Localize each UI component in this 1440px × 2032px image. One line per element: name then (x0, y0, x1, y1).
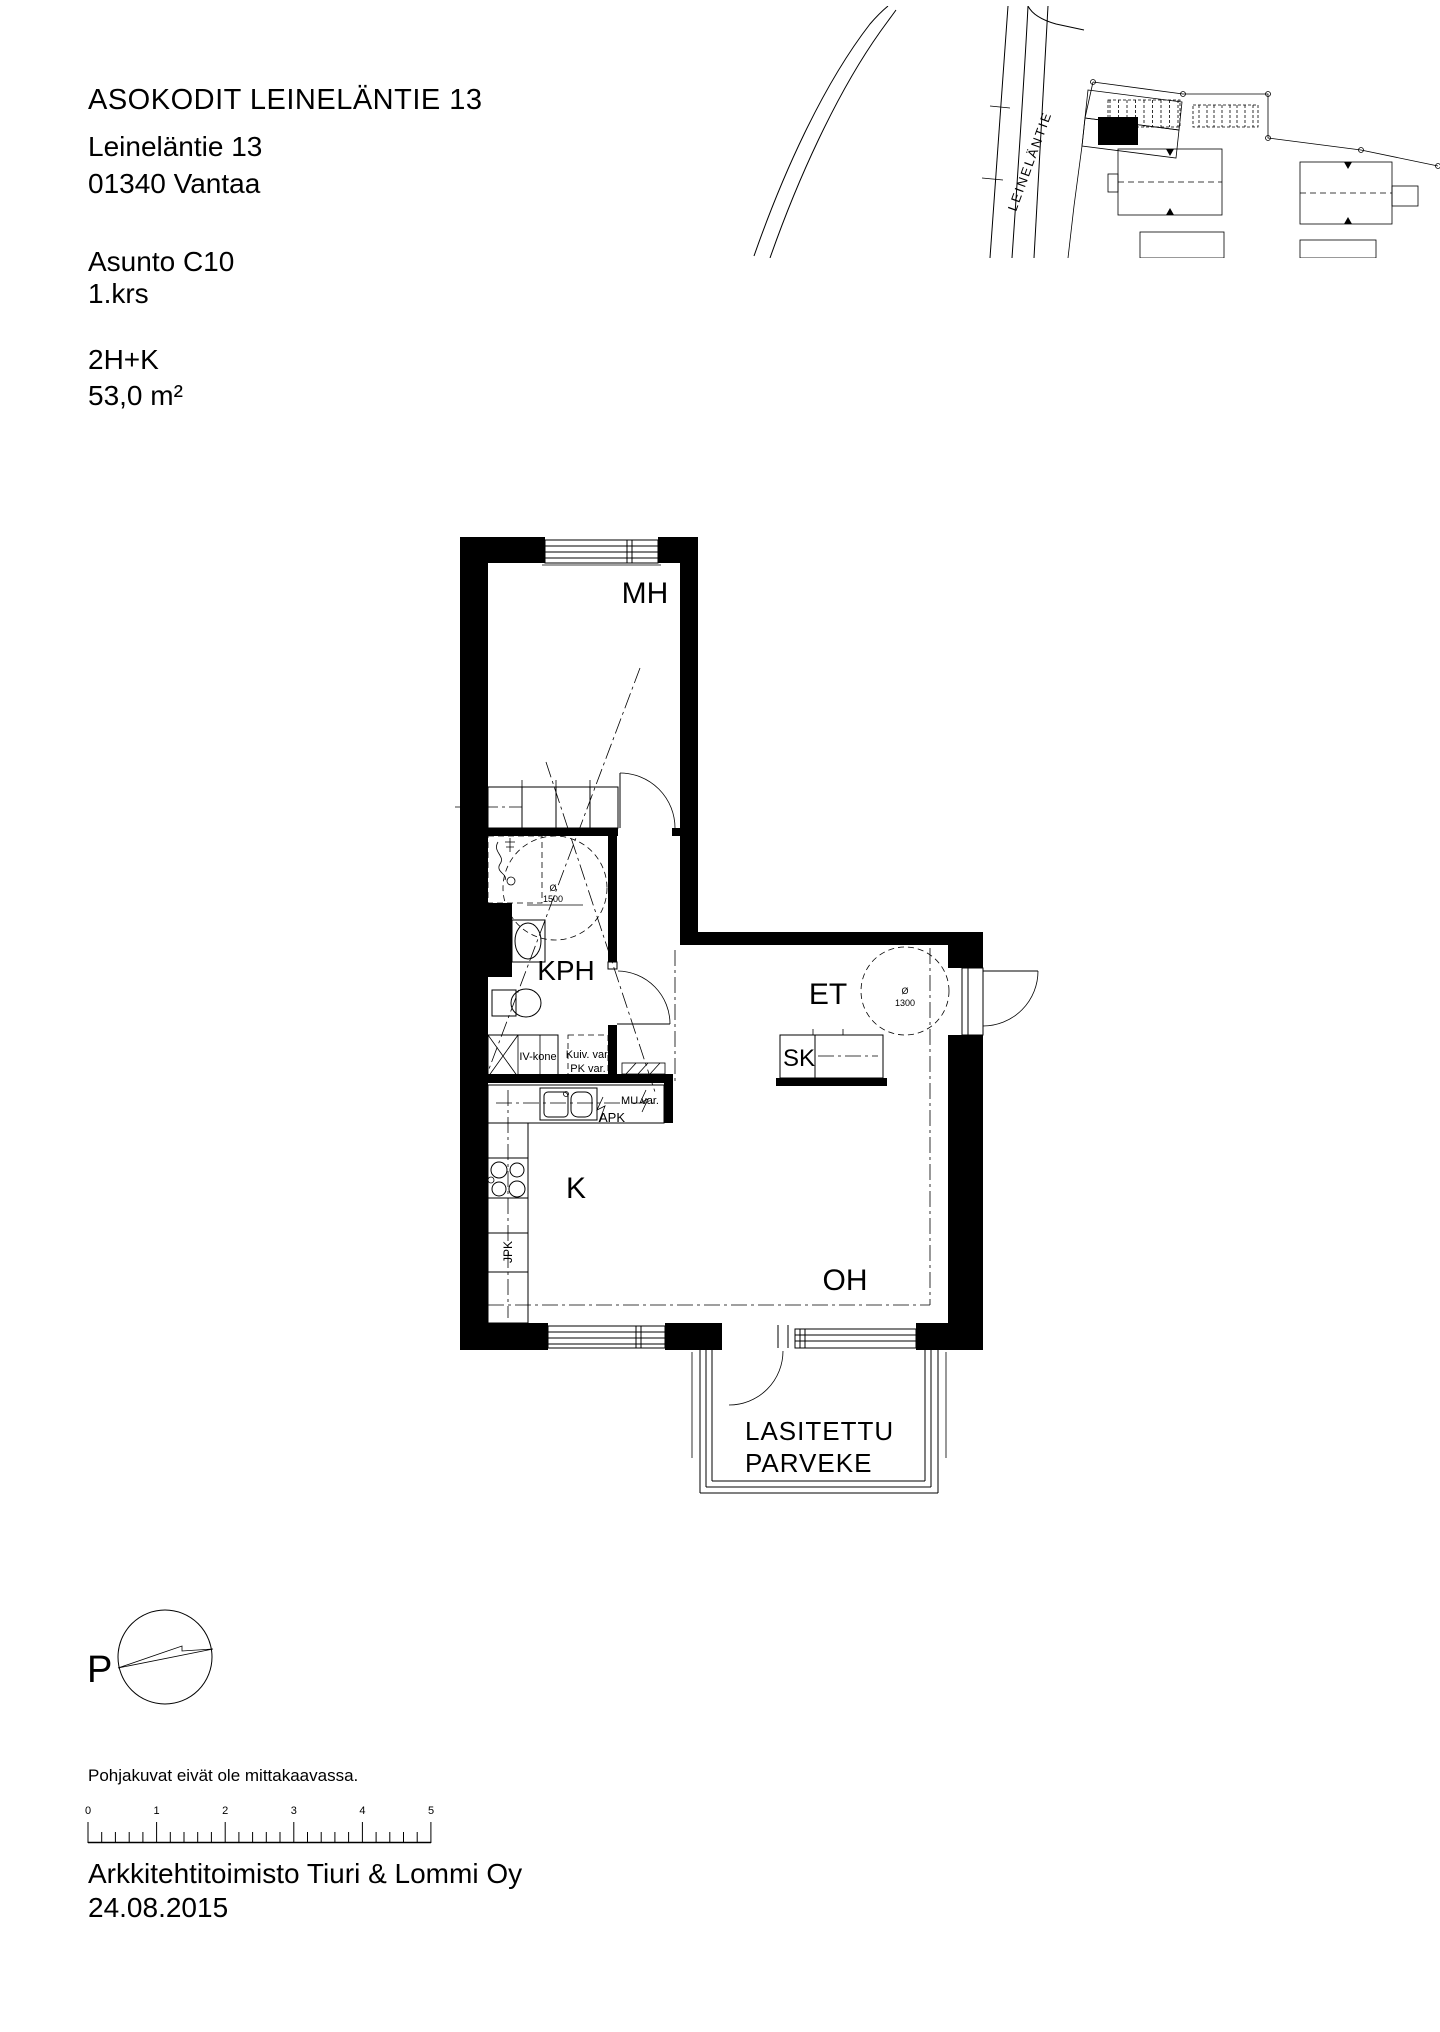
scale-tick-1: 1 (154, 1805, 160, 1817)
et-circle-value: 1300 (895, 998, 915, 1008)
door-kph (608, 962, 670, 1024)
floorplan-page: { "header": { "project": "ASOKODIT LEINE… (0, 0, 1440, 2032)
label-sk: SK (783, 1045, 815, 1072)
north-label: P (87, 1649, 112, 1691)
balcony-label-line1: LASITETTU (745, 1416, 894, 1446)
north-arrow: P (85, 1598, 245, 1723)
site-plan-map: LEINELÄNTIE (752, 6, 1440, 258)
street-name-label: LEINELÄNTIE (1005, 109, 1055, 213)
scale-tick-3: 3 (291, 1805, 297, 1817)
toilet (492, 989, 541, 1017)
scale-tick-4: 4 (359, 1805, 365, 1817)
architect-company: Arkkitehtitoimisto Tiuri & Lommi Oy (88, 1858, 522, 1890)
apartment-type: 2H+K (88, 344, 159, 376)
balcony-label-line2: PARVEKE (745, 1448, 872, 1478)
street-address: Leineläntie 13 (88, 131, 262, 163)
apartment-id: Asunto C10 (88, 246, 234, 278)
et-circle-symbol: Ø (901, 986, 908, 996)
apartment-area: 53,0 m² (88, 380, 183, 412)
door-balcony (729, 1325, 788, 1405)
scale-tick-5: 5 (428, 1805, 434, 1817)
door-mh (620, 773, 675, 828)
label-jpk: JPK (501, 1241, 515, 1263)
wardrobe-row (488, 780, 618, 828)
room-label-oh: OH (823, 1264, 868, 1297)
window-kitchen (548, 1326, 665, 1348)
room-label-mh: MH (622, 577, 669, 610)
label-kuiv-var: Kuiv. var. (566, 1049, 610, 1061)
door-entrance (962, 968, 1038, 1035)
plan-date: 24.08.2015 (88, 1892, 228, 1924)
window-balcony (795, 1329, 916, 1348)
plumbing-chase (485, 903, 512, 977)
floor-number: 1.krs (88, 278, 149, 310)
turning-circle-kph: Ø 1500 (503, 836, 607, 940)
compass-needle (118, 1646, 213, 1668)
shower (488, 836, 542, 903)
site-buildings (1082, 90, 1418, 258)
label-apk: APK (599, 1110, 625, 1125)
compass-circle (118, 1610, 212, 1704)
project-title: ASOKODIT LEINELÄNTIE 13 (88, 84, 483, 117)
room-label-k: K (566, 1172, 586, 1205)
site-parcel-boundary (1068, 80, 1440, 259)
scale-tick-0: 0 (85, 1805, 91, 1817)
label-pk-var: PK var. (570, 1063, 605, 1075)
turning-circle-et: Ø 1300 (861, 947, 949, 1035)
room-label-kph: KPH (537, 955, 595, 986)
walls (460, 537, 983, 1350)
label-mu-var: MU var. (621, 1095, 659, 1107)
scale-ticks (88, 1822, 431, 1843)
kph-circle-symbol: Ø (549, 883, 556, 893)
kitchen-sink (540, 1088, 597, 1120)
label-iv-kone: IV-kone (519, 1051, 556, 1063)
apartment-floor-plan: Ø 1500 (440, 520, 1060, 1510)
kph-circle-value: 1500 (543, 894, 563, 904)
postal-city: 01340 Vantaa (88, 168, 260, 200)
scale-tick-2: 2 (222, 1805, 228, 1817)
window-mh (542, 540, 661, 565)
scale-bar: 0 1 2 3 4 5 (85, 1798, 445, 1853)
scale-disclaimer: Pohjakuvat eivät ole mittakaavassa. (88, 1766, 358, 1786)
room-label-et: ET (809, 978, 847, 1011)
site-apartment-marker (1098, 117, 1138, 145)
